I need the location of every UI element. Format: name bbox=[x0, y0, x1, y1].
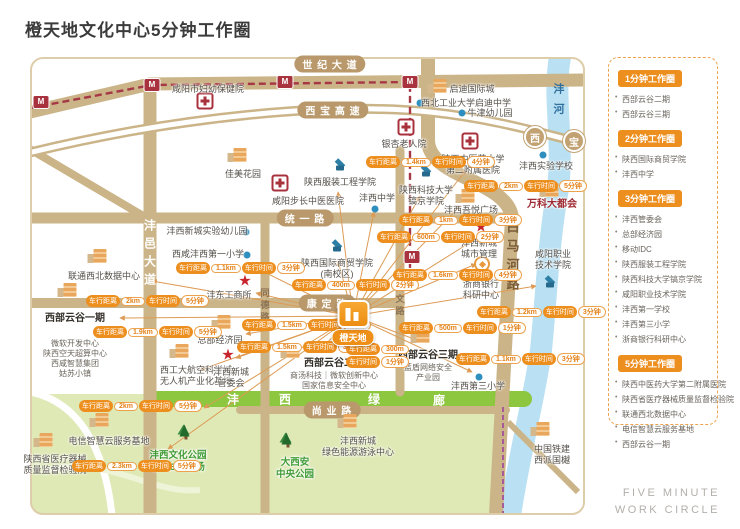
legend-sections: 1分钟工作圈西部云谷二期西部云谷三期2分钟工作圈陕西国际商贸学院沣西中学3分钟工… bbox=[609, 70, 717, 452]
drive-time-value: 1分钟 bbox=[498, 322, 526, 334]
western-cloud-valley-phase1-sub-text: 微软开发中心 bbox=[43, 339, 107, 349]
drive-time-value: 2分钟 bbox=[476, 231, 504, 243]
oxford-kindergarten-label: 牛津幼儿园 bbox=[467, 108, 512, 119]
shaanxi-fashion-engineering-college-label: 陕西服装工程学院 bbox=[304, 177, 376, 188]
drive-distance-value: 2.3km bbox=[107, 462, 137, 471]
drive-time-label: 车行时间 bbox=[346, 356, 380, 368]
fengxi-third-primary-text: 沣西第三小学 bbox=[451, 381, 505, 392]
metro-station-icon: M bbox=[277, 75, 294, 89]
drive-distance-value: 2km bbox=[114, 402, 138, 411]
drive-time-label: 车行时间 bbox=[138, 460, 172, 472]
drive-distance-label: 车行距离 bbox=[456, 353, 490, 365]
drive-time-value: 3分钟 bbox=[494, 214, 522, 226]
fengdong-industry-commerce-office-text: 沣东工商所 bbox=[206, 290, 251, 301]
toll-gate-icon: 宝 bbox=[563, 130, 585, 152]
building-icon bbox=[64, 283, 77, 297]
star-icon bbox=[238, 274, 253, 289]
drive-distance-badge: 车行距离500m车行时间1分钟 bbox=[399, 322, 526, 334]
dot-icon bbox=[476, 374, 483, 381]
badge-row: 车行距离2km车行时间5分钟 bbox=[86, 295, 209, 307]
badge-row: 车行距离1.2km车行时间3分钟 bbox=[477, 306, 606, 318]
drive-distance-label: 车行距离 bbox=[477, 306, 511, 318]
fengdong-industry-commerce-office-label: 沣东工商所 bbox=[206, 290, 251, 301]
tree-icon bbox=[287, 441, 290, 448]
drive-time-label: 车行时间 bbox=[432, 156, 466, 168]
badge-row: 车行距离1.1km车行时间3分钟 bbox=[456, 353, 585, 365]
tree-icon bbox=[185, 433, 188, 440]
western-cloud-valley-phase3-sub-text: 产业园 bbox=[398, 373, 458, 383]
page-title: 橙天地文化中心5分钟工作圈 bbox=[25, 16, 251, 41]
badge-row: 车行距离1.6km车行时间4分钟 bbox=[393, 269, 522, 281]
road-label: 西 bbox=[279, 391, 291, 408]
drive-time-value: 3分钟 bbox=[557, 353, 585, 365]
building-icon bbox=[176, 344, 189, 358]
drive-distance-label: 车行距离 bbox=[237, 341, 271, 353]
metro-station-icon: M bbox=[404, 250, 421, 264]
drive-distance-label: 车行距离 bbox=[242, 319, 276, 331]
drive-time-label: 车行时间 bbox=[459, 269, 493, 281]
building-icon bbox=[434, 79, 447, 93]
fengxi-middle-school-text: 沣西中学 bbox=[359, 193, 395, 204]
road-label: 绿 bbox=[368, 391, 380, 408]
drive-time-value: 3分钟 bbox=[277, 262, 305, 274]
drive-time-value: 5分钟 bbox=[174, 400, 202, 412]
fengxi-green-energy-swim-center-label: 沣西新城绿色能源游泳中心 bbox=[322, 436, 394, 459]
fengxi-green-energy-swim-center-text: 绿色能源游泳中心 bbox=[322, 447, 394, 458]
legend-item: 联通西北数据中心 bbox=[609, 407, 717, 422]
dot-icon bbox=[459, 110, 466, 117]
xixian-fengxi-first-primary-label: 西咸沣西第一小学 bbox=[172, 249, 244, 260]
drive-distance-badge: 车行距离1.4km车行时间4分钟 bbox=[366, 156, 495, 168]
badge-row: 车行距离1km车行时间3分钟 bbox=[399, 214, 522, 226]
building-icon bbox=[96, 413, 109, 427]
star-icon bbox=[221, 348, 236, 363]
fengxi-middle-school-label: 沣西中学 bbox=[359, 193, 395, 204]
drive-distance-label: 车行距离 bbox=[377, 231, 411, 243]
metro-station-icon: M bbox=[144, 78, 161, 92]
drive-distance-badge: 车行距离1km车行时间3分钟 bbox=[399, 214, 522, 226]
legend-item: 陕西服装工程学院 bbox=[609, 257, 717, 272]
drive-distance-value: 1.6km bbox=[428, 271, 458, 280]
xianyang-maternity-hospital-label: 咸阳市妇幼保健院 bbox=[172, 84, 244, 95]
drive-time-label: 车行时间 bbox=[159, 326, 193, 338]
fengxi-experimental-kindergarten-text: 沣西新城实验幼儿园 bbox=[166, 226, 247, 237]
badge-row: 车行距离1.9km车行时间5分钟 bbox=[93, 326, 222, 338]
badge-row: 车行距离1.4km车行时间4分钟 bbox=[366, 156, 495, 168]
metro-station-icon: M bbox=[402, 75, 419, 89]
daxian-central-park-label: 大西安中央公园 bbox=[276, 457, 314, 481]
drive-time-label: 车行时间 bbox=[356, 279, 390, 291]
footer-caption: FIVE MINUTE WORK CIRCLE bbox=[615, 485, 720, 519]
drive-time-label: 车行时间 bbox=[146, 295, 180, 307]
legend-item: 西部云谷三期 bbox=[609, 107, 717, 122]
fengxi-third-primary-label: 沣西第三小学 bbox=[451, 381, 505, 392]
qidi-international-city-label: 启迪国际城 bbox=[449, 84, 494, 95]
drive-time-label: 车行时间 bbox=[463, 322, 497, 334]
drive-time-value: 5分钟 bbox=[559, 180, 587, 192]
badge-row: 车行距离2.3km车行时间5分钟 bbox=[72, 460, 201, 472]
drive-time-value: 5分钟 bbox=[173, 460, 201, 472]
badge-row: 车行距离1.1km车行时间3分钟 bbox=[176, 262, 305, 274]
toll-gate-icon: 西 bbox=[524, 126, 546, 148]
drive-time-label: 车行时间 bbox=[441, 231, 475, 243]
shaanxi-intl-business-college-text: 陕西国际商贸学院 bbox=[301, 258, 373, 269]
drive-time-value: 5分钟 bbox=[181, 295, 209, 307]
crcc-xipai-guoyue-text: 西派国樾 bbox=[534, 455, 570, 466]
fengxi-new-city-admin-committee-text: 沣西新城 bbox=[213, 367, 249, 378]
drive-distance-label: 车行距离 bbox=[79, 400, 113, 412]
drive-distance-label: 车行距离 bbox=[464, 180, 498, 192]
building-icon bbox=[344, 414, 357, 428]
drive-distance-badge: 车行距离2.3km车行时间5分钟 bbox=[72, 460, 201, 472]
badge-row: 车行距离2km车行时间5分钟 bbox=[464, 180, 587, 192]
road-label: 廊 bbox=[433, 392, 445, 409]
xixian-fengxi-first-primary-text: 西咸沣西第一小学 bbox=[172, 249, 244, 260]
drive-distance-label: 车行距离 bbox=[86, 295, 120, 307]
legend-item: 陕西省医疗器械质量监督检验院 bbox=[609, 392, 717, 407]
drive-distance-value: 2km bbox=[121, 297, 145, 306]
drive-distance-badge: 车行距离1.9km车行时间5分钟 bbox=[93, 326, 222, 338]
building-icon bbox=[94, 249, 107, 263]
drive-distance-value: 300m bbox=[381, 345, 409, 354]
drive-time-label: 车行时间 bbox=[543, 306, 577, 318]
shaanxi-fashion-engineering-college-text: 陕西服装工程学院 bbox=[304, 177, 376, 188]
drive-distance-value: 500m bbox=[434, 324, 462, 333]
drive-time-label: 车行时间 bbox=[522, 353, 556, 365]
road-label: 沣邑大道 bbox=[142, 219, 159, 291]
drive-distance-badge: 车行距离2km车行时间5分钟 bbox=[86, 295, 209, 307]
dot-icon bbox=[244, 252, 251, 259]
legend-item: 移动IDC bbox=[609, 242, 717, 257]
western-cloud-valley-phase2-sub-text: 国家信息安全中心 bbox=[290, 381, 378, 391]
crcc-xipai-guoyue-label: 中国铁建西派国樾 bbox=[534, 444, 570, 467]
chengtiandi-project-marker: 橙天地 bbox=[331, 300, 374, 346]
school-icon bbox=[542, 277, 558, 290]
jiamei-garden-text: 佳美花园 bbox=[225, 169, 261, 180]
dot-icon bbox=[372, 206, 379, 213]
badge-row: 车行距离500m车行时间1分钟 bbox=[399, 322, 526, 334]
legend-item: 沣西中学 bbox=[609, 167, 717, 182]
drive-distance-value: 2km bbox=[499, 182, 523, 191]
dot-icon bbox=[540, 152, 547, 159]
fengxi-new-city-admin-committee-label: 沣西新城管委会 bbox=[213, 367, 249, 390]
daxian-central-park-text: 大西安 bbox=[276, 457, 314, 469]
zheshang-bank-rd-center-text: 科研中心 bbox=[463, 290, 499, 301]
fengxi-city-management-text: 城市管理 bbox=[461, 249, 497, 260]
legend-header-3: 3分钟工作圈 bbox=[618, 190, 682, 207]
footer-line1: FIVE MINUTE bbox=[615, 485, 720, 502]
zheshang-bank-rd-center-label: 浙商银行科研中心 bbox=[463, 279, 499, 302]
drive-distance-badge: 车行距离1.6km车行时间4分钟 bbox=[393, 269, 522, 281]
road-label: 世 纪 大 道 bbox=[294, 56, 365, 73]
jiamei-garden-label: 佳美花园 bbox=[225, 169, 261, 180]
legend-item: 陕西科技大学镐京学院 bbox=[609, 272, 717, 287]
drive-time-value: 4分钟 bbox=[494, 269, 522, 281]
legend-item: 沣西管委会 bbox=[609, 212, 717, 227]
fengxi-experimental-school-label: 沣西实验学校 bbox=[519, 161, 573, 172]
school-icon bbox=[332, 160, 348, 173]
drive-distance-badge: 车行距离1.2km车行时间3分钟 bbox=[477, 306, 606, 318]
legend-item: 陕西国际商贸学院 bbox=[609, 152, 717, 167]
buchang-tcm-hospital-label: 咸阳步长中医医院 bbox=[272, 196, 344, 207]
western-cloud-valley-phase1-text: 西部云谷一期 bbox=[43, 313, 107, 326]
drive-time-label: 车行时间 bbox=[139, 400, 173, 412]
drive-distance-value: 1km bbox=[434, 216, 458, 225]
drive-distance-value: 1.5km bbox=[277, 321, 307, 330]
drive-distance-value: 1.1km bbox=[491, 355, 521, 364]
chengtiandi-label: 橙天地 bbox=[331, 329, 374, 346]
xianyang-vocational-college-text: 技术学院 bbox=[535, 260, 571, 271]
badge-row: 车行时间1分钟 bbox=[346, 356, 409, 368]
road-label: 西 宝 高 速 bbox=[297, 102, 368, 119]
fengxi-experimental-kindergarten-label: 沣西新城实验幼儿园 bbox=[166, 226, 247, 237]
western-cloud-valley-phase1-sub-text: 姑苏小镇 bbox=[43, 369, 107, 379]
legend-item: 陕西中医药大学第二附属医院 bbox=[609, 377, 717, 392]
legend-item: 西部云谷一期 bbox=[609, 437, 717, 452]
fengxi-new-city-admin-committee-text: 管委会 bbox=[213, 378, 249, 389]
unicom-nw-data-center-label: 联通西北数据中心 bbox=[68, 271, 140, 282]
drive-distance-label: 车行距离 bbox=[366, 156, 400, 168]
work-circle-legend: 1分钟工作圈西部云谷二期西部云谷三期2分钟工作圈陕西国际商贸学院沣西中学3分钟工… bbox=[608, 57, 718, 425]
drive-distance-badge: 车行距离1.1km车行时间3分钟 bbox=[456, 353, 585, 365]
hospital-icon bbox=[462, 133, 479, 150]
legend-item: 西部云谷二期 bbox=[609, 92, 717, 107]
drive-time-label: 车行时间 bbox=[242, 262, 276, 274]
drive-distance-label: 车行距离 bbox=[292, 279, 326, 291]
building-icon bbox=[40, 433, 53, 447]
building-icon bbox=[234, 148, 247, 162]
ginkgo-nursing-home-text: 银杏老人院 bbox=[381, 139, 426, 150]
drive-distance-value: 1.1km bbox=[211, 264, 241, 273]
map-page: 橙天地文化中心5分钟工作圈 世 纪 大 道西 宝 高 速统 一 路康 定 路尚 … bbox=[0, 0, 740, 529]
western-cloud-valley-phase1-sub-text: 陕西空天超算中心 bbox=[43, 349, 107, 359]
vanke-metropolis-text: 万科大都会 bbox=[527, 199, 577, 212]
drive-time-value: 3分钟 bbox=[578, 306, 606, 318]
crcc-xipai-guoyue-text: 中国铁建 bbox=[534, 444, 570, 455]
legend-header-4: 5分钟工作圈 bbox=[618, 355, 682, 372]
drive-distance-badge: 车行距离600m车行时间2分钟 bbox=[377, 231, 504, 243]
drive-time-value: 1分钟 bbox=[381, 356, 409, 368]
metro-station-icon: M bbox=[33, 95, 50, 109]
legend-header-1: 1分钟工作圈 bbox=[618, 70, 682, 87]
western-cloud-valley-phase1-label: 西部云谷一期微软开发中心陕西空天超算中心西咸智慧集团姑苏小镇 bbox=[43, 313, 107, 379]
drive-time-value: 5分钟 bbox=[194, 326, 222, 338]
drive-distance-value: 600m bbox=[412, 233, 440, 242]
legend-item: 电信智慧云服务基地 bbox=[609, 422, 717, 437]
road-label: 沣 bbox=[227, 391, 239, 408]
telecom-smart-cloud-base-label: 电信智慧云服务基地 bbox=[68, 436, 149, 447]
legend-item: 浙商银行科研中心 bbox=[609, 332, 717, 347]
western-cloud-valley-phase2-sub-text: 商汤科技｜微软创新中心 bbox=[290, 371, 378, 381]
drive-distance-label: 车行距离 bbox=[393, 269, 427, 281]
drive-distance-value: 1.9km bbox=[128, 328, 158, 337]
shaanxi-ust-haojing-college-text: 陕西科技大学 bbox=[399, 185, 453, 196]
legend-item: 咸阳职业技术学院 bbox=[609, 287, 717, 302]
vanke-metropolis-label: 万科大都会 bbox=[527, 199, 577, 212]
drive-time-label: 车行时间 bbox=[524, 180, 558, 192]
footer-line2: WORK CIRCLE bbox=[615, 502, 720, 519]
xianyang-vocational-college-text: 咸阳职业 bbox=[535, 249, 571, 260]
chengtiandi-logo-icon bbox=[337, 300, 369, 328]
telecom-smart-cloud-base-text: 电信智慧云服务基地 bbox=[68, 436, 149, 447]
road-label: 沣河 bbox=[550, 83, 566, 123]
drive-distance-value: 1.4km bbox=[401, 158, 431, 167]
fengxi-green-energy-swim-center-text: 沣西新城 bbox=[322, 436, 394, 447]
drive-time-value: 4分钟 bbox=[467, 156, 495, 168]
legend-header-2: 2分钟工作圈 bbox=[618, 130, 682, 147]
xianyang-maternity-hospital-text: 咸阳市妇幼保健院 bbox=[172, 84, 244, 95]
ginkgo-nursing-home-label: 银杏老人院 bbox=[381, 139, 426, 150]
unicom-nw-data-center-text: 联通西北数据中心 bbox=[68, 271, 140, 282]
drive-distance-value: 400m bbox=[327, 281, 355, 290]
drive-distance-badge: 车行距离1.1km车行时间3分钟 bbox=[176, 262, 305, 274]
building-icon bbox=[537, 422, 550, 436]
drive-distance-label: 车行距离 bbox=[72, 460, 106, 472]
drive-time-label: 车行时间 bbox=[459, 214, 493, 226]
school-icon bbox=[329, 241, 345, 254]
badge-row: 车行距离600m车行时间2分钟 bbox=[377, 231, 504, 243]
drive-distance-label: 车行距离 bbox=[176, 262, 210, 274]
xianyang-vocational-college-label: 咸阳职业技术学院 bbox=[535, 249, 571, 272]
drive-distance-badge: 车行距离2km车行时间5分钟 bbox=[79, 400, 202, 412]
drive-distance-badge: 车行距离2km车行时间5分钟 bbox=[464, 180, 587, 192]
legend-item: 沣西第一学校 bbox=[609, 302, 717, 317]
hospital-icon bbox=[272, 175, 289, 192]
drive-distance-label: 车行距离 bbox=[93, 326, 127, 338]
drive-distance-value: 1.5km bbox=[272, 343, 302, 352]
fengxi-experimental-school-text: 沣西实验学校 bbox=[519, 161, 573, 172]
road-label: 白马河路 bbox=[503, 220, 522, 296]
drive-distance-value: 1.2km bbox=[512, 308, 542, 317]
drive-distance-label: 车行距离 bbox=[399, 214, 433, 226]
badge-row: 车行距离2km车行时间5分钟 bbox=[79, 400, 202, 412]
oxford-kindergarten-text: 牛津幼儿园 bbox=[467, 108, 512, 119]
legend-item: 沣西第三小学 bbox=[609, 317, 717, 332]
hospital-icon bbox=[398, 119, 415, 136]
drive-distance-badge: 车行距离300m车行时间1分钟 bbox=[346, 343, 409, 368]
western-cloud-valley-phase1-sub-text: 西咸智慧集团 bbox=[43, 359, 107, 369]
daxian-central-park-text: 中央公园 bbox=[276, 469, 314, 481]
qidi-international-city-text: 启迪国际城 bbox=[449, 84, 494, 95]
shaanxi-intl-business-college-label: 陕西国际商贸学院(南校区) bbox=[301, 258, 373, 281]
drive-distance-label: 车行距离 bbox=[399, 322, 433, 334]
legend-item: 总部经济园 bbox=[609, 227, 717, 242]
buchang-tcm-hospital-text: 咸阳步长中医医院 bbox=[272, 196, 344, 207]
road-label: 统 一 路 bbox=[277, 210, 334, 227]
